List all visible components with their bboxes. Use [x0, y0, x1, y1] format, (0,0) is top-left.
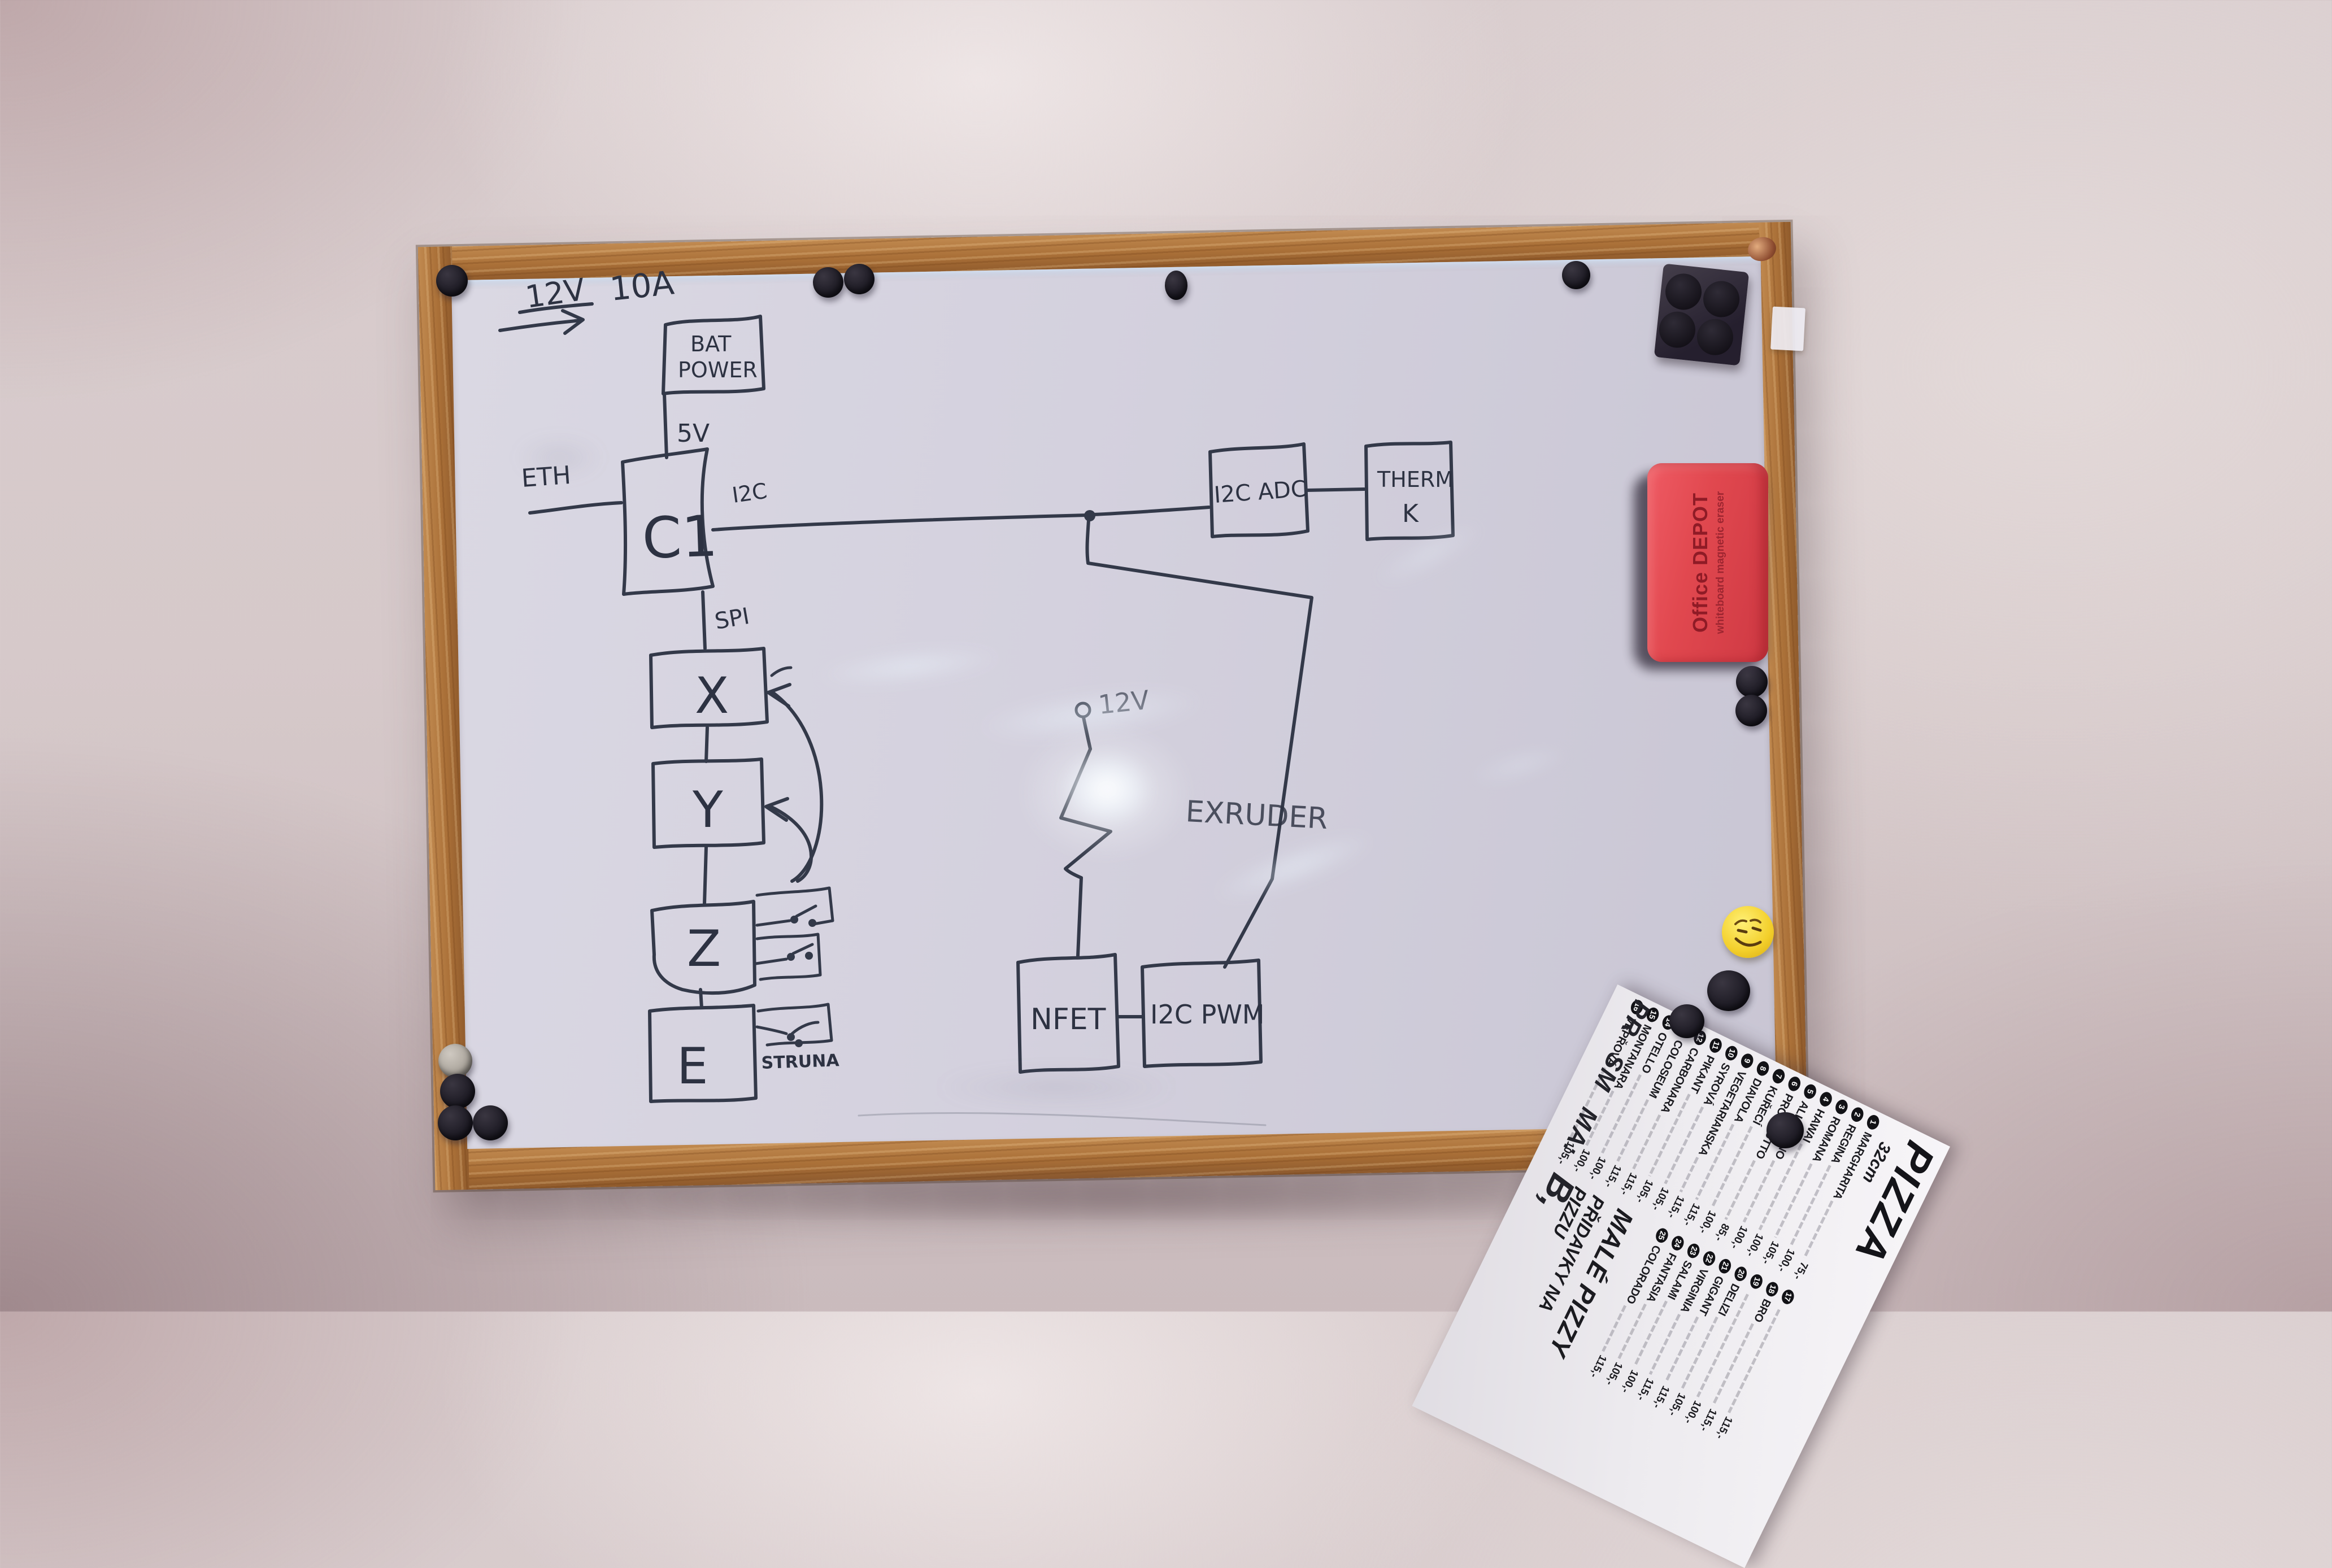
smiley-face-icon	[1722, 906, 1774, 958]
menu-item-number: 25	[1654, 1227, 1670, 1244]
magnet	[440, 1074, 475, 1109]
z-switch2-wire	[756, 959, 786, 964]
fragment-text: SM	[1587, 1048, 1630, 1096]
menu-item-number: 11	[1708, 1036, 1724, 1054]
wire-adc-therm	[1306, 489, 1364, 490]
label-supply-10a: 10A	[608, 263, 676, 308]
wire-i2c-2	[1093, 507, 1209, 515]
magnet	[1767, 1112, 1804, 1148]
menu-item-number: 9	[1739, 1052, 1755, 1070]
e-switch-wire	[757, 1027, 786, 1034]
label-i2c: I2C	[730, 478, 768, 508]
menu-item-number: 8	[1755, 1060, 1771, 1077]
menu-item-number: 21	[1717, 1257, 1733, 1275]
tray-magnet	[1702, 279, 1741, 319]
label-nfet: NFET	[1030, 1003, 1106, 1036]
e-switch-lever	[792, 1022, 818, 1034]
menu-item-number: 17	[1780, 1288, 1796, 1305]
tray-magnet	[1695, 317, 1735, 357]
menu-item-number: 24	[1670, 1234, 1686, 1252]
menu-item-number: 20	[1733, 1265, 1748, 1283]
tray-magnet	[1657, 310, 1697, 349]
label-i2c-pwm: I2C PWM	[1150, 999, 1265, 1030]
label-axis-e: E	[677, 1037, 708, 1095]
wire-12v-down	[1084, 717, 1090, 749]
wire-x-y	[706, 728, 707, 761]
label-supply-12v: 12V	[523, 272, 587, 315]
menu-item-number: 22	[1701, 1249, 1717, 1267]
wire-heater-nfet	[1078, 878, 1081, 956]
label-spi: SPI	[713, 603, 751, 635]
v12-tap-circle	[1076, 703, 1090, 717]
tray-magnet	[1664, 272, 1703, 311]
magnet	[1669, 1004, 1704, 1038]
label-struna: STRUNA	[761, 1051, 840, 1073]
menu-item-number: 23	[1686, 1242, 1702, 1260]
menu-item-number: 18	[1764, 1280, 1780, 1298]
magnet	[438, 1105, 473, 1140]
label-axis-y: Y	[692, 781, 723, 839]
heater-zigzag	[1061, 749, 1111, 878]
magnet	[1562, 261, 1590, 289]
label-bat: BAT	[690, 332, 732, 356]
label-i2c-adc: I2C ADC	[1213, 476, 1307, 508]
eraser-brand-line1: Office DEPOT	[1689, 467, 1712, 659]
label-5v: 5V	[677, 419, 710, 448]
menu-item-number: 19	[1748, 1273, 1764, 1290]
wire-z-e	[701, 990, 702, 1008]
wire-i2c-to-pwm	[1087, 520, 1312, 967]
menu-item-number: 10	[1724, 1044, 1739, 1062]
z-switch2-contact2	[805, 952, 813, 960]
magnet	[473, 1105, 508, 1140]
e-switch-contact2	[795, 1039, 803, 1047]
wire-y-z	[704, 847, 706, 904]
label-c1: C1	[641, 503, 719, 572]
wire-eth	[530, 503, 621, 513]
fragment-text: MA:	[1556, 1103, 1603, 1161]
eraser-brand: Office DEPOT whiteboard magnetic eraser	[1689, 467, 1727, 659]
magnet	[813, 267, 843, 298]
magnet-tray	[1654, 264, 1750, 366]
old-scratch-line	[859, 1113, 1265, 1125]
magnet	[436, 265, 468, 297]
whiteboard-eraser: Office DEPOT whiteboard magnetic eraser	[1647, 463, 1768, 662]
magnet-gray	[438, 1044, 472, 1078]
z-switch1-wire	[757, 921, 790, 925]
menu-item-number: 1	[1865, 1113, 1881, 1131]
label-axis-x: X	[695, 667, 729, 725]
magnet	[1707, 970, 1750, 1011]
fragment-text: PR	[1614, 996, 1655, 1041]
chevron-mark	[772, 668, 791, 676]
z-switch1-contact2	[808, 919, 816, 927]
arc-to-x	[773, 692, 821, 881]
magnet	[1165, 271, 1187, 300]
menu-item-number: 6	[1786, 1075, 1802, 1092]
label-therm: THERM	[1377, 467, 1454, 492]
whiteboard-diagram: 12V 10A BAT POWER 5V ETH C1 I2C SPI I2C …	[0, 0, 2332, 1312]
wire-bat-c1	[664, 394, 667, 458]
smiley-magnet	[1722, 906, 1774, 958]
wire-spi	[703, 592, 705, 648]
label-axis-z: Z	[687, 920, 721, 978]
menu-item-number: 2	[1850, 1106, 1865, 1123]
menu-item-number: 4	[1818, 1090, 1834, 1108]
label-eth: ETH	[520, 461, 572, 493]
magnet	[844, 264, 874, 294]
label-12v-mid: 12V	[1097, 685, 1151, 720]
tape-piece	[1770, 307, 1805, 351]
e-switch-outline	[758, 1004, 832, 1045]
magnet	[1735, 695, 1767, 726]
label-power: POWER	[678, 358, 758, 382]
label-therm-k: K	[1402, 499, 1419, 528]
whiteboard-photo-scene: 12V 10A BAT POWER 5V ETH C1 I2C SPI I2C …	[0, 0, 2332, 1312]
label-extruder: EXRUDER	[1185, 795, 1328, 836]
eraser-brand-line2: whiteboard magnetic eraser	[1715, 467, 1727, 659]
wire-i2c-1	[713, 515, 1087, 530]
z-switch1-lever	[797, 906, 816, 916]
menu-item-number: 5	[1802, 1083, 1818, 1100]
menu-item-number: 7	[1770, 1068, 1786, 1085]
menu-item-number: 3	[1834, 1098, 1850, 1116]
magnet	[1736, 666, 1768, 698]
